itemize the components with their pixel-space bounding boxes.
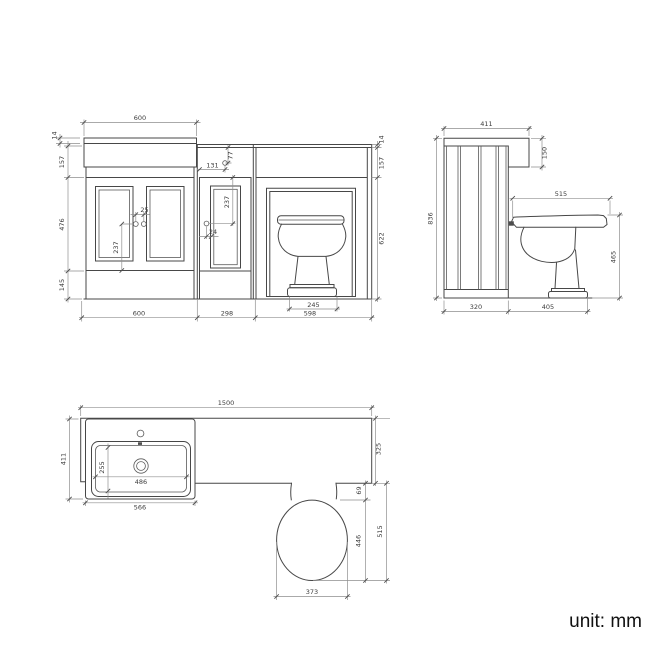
side-toilet-bowl — [521, 227, 579, 288]
front-elevation-view: 600 14 157 476 145 25 237 131 77 237 24 … — [51, 114, 386, 322]
front-toilet-base — [288, 288, 337, 297]
front-left-door-2 — [147, 187, 185, 262]
side-tick-marks — [434, 126, 621, 313]
front-knob-left-2 — [141, 222, 146, 227]
dim-front-section-mid: 298 — [221, 310, 233, 318]
dim-front-section-right: 598 — [304, 310, 316, 318]
dim-front-toilet-base-width: 245 — [307, 301, 319, 309]
dim-front-door-zone-height: 476 — [58, 218, 66, 230]
dim-front-mid-knob-edge-offset: 24 — [209, 228, 217, 236]
front-dimension-lines — [56, 120, 382, 322]
front-knob-left-1 — [133, 222, 138, 227]
plan-worktop-outline — [81, 418, 372, 483]
side-seat-hinge — [509, 221, 514, 225]
dim-front-top-width: 600 — [134, 114, 146, 122]
dim-side-panel-depth: 320 — [470, 303, 482, 311]
side-panel-grooves — [447, 146, 507, 290]
dim-side-toilet-zone-depth: 405 — [542, 303, 554, 311]
front-toilet-bowl — [278, 224, 346, 284]
dim-front-upstand-height: 157 — [58, 156, 66, 168]
technical-drawing-page: { "drawing": { "unit_label": "unit: mm",… — [0, 0, 650, 650]
dim-front-plinth-height: 145 — [58, 279, 66, 291]
dim-plan-counter-depth: 325 — [375, 443, 383, 455]
plan-toilet-neck — [291, 483, 337, 500]
side-toilet-base — [549, 292, 588, 299]
dim-front-section-left: 600 — [133, 310, 145, 318]
dim-side-counter-return-drop: 150 — [541, 147, 549, 159]
unit-note: unit: mm — [569, 611, 642, 632]
plan-tap-hole — [137, 430, 144, 437]
dim-front-knob-spacing: 25 — [140, 206, 148, 214]
dim-front-counter-thickness-left: 14 — [51, 131, 59, 139]
dim-front-mid-knob-offset-h: 131 — [206, 161, 218, 169]
dim-plan-pan-overall-length: 515 — [376, 525, 384, 537]
side-panel-outline — [444, 138, 592, 298]
dim-plan-seat-gap: 69 — [355, 486, 363, 494]
dim-plan-basin-unit-depth: 411 — [60, 453, 68, 465]
dim-front-counter-band-right: 157 — [378, 157, 386, 169]
dim-front-mid-door-knob-drop: 237 — [223, 196, 231, 208]
dim-side-seat-height: 465 — [610, 251, 618, 263]
plan-waste-inner — [137, 462, 146, 471]
dim-plan-overall-width: 1500 — [218, 399, 235, 407]
dim-plan-pan-length: 446 — [355, 535, 363, 547]
dim-side-overall-height: 836 — [427, 212, 435, 224]
front-left-door-2-panel — [150, 190, 181, 258]
front-knob-mid — [204, 221, 209, 226]
dim-plan-basin-unit-width: 566 — [134, 503, 146, 511]
dim-front-mid-knob-offset-v: 77 — [227, 151, 235, 159]
dim-front-knob-to-plinth: 237 — [112, 241, 120, 253]
dim-front-body-height-right: 622 — [378, 232, 386, 244]
dim-side-counter-depth: 411 — [480, 120, 492, 128]
dim-front-counter-thickness-right: 14 — [378, 135, 386, 143]
plan-waste-outer — [134, 459, 148, 473]
dim-side-seat-projection: 515 — [555, 190, 567, 198]
plan-dimension-lines — [66, 405, 391, 600]
side-toilet-seat — [512, 215, 608, 227]
dim-plan-basin-inner-depth: 255 — [98, 461, 106, 473]
side-elevation-view: 411 150 836 515 465 320 405 — [427, 120, 624, 315]
plan-toilet-pan — [277, 500, 348, 580]
plan-overflow-mark — [138, 442, 142, 445]
plan-view: 1500 411 255 486 566 325 69 446 515 373 — [60, 399, 391, 600]
plan-tick-marks — [67, 406, 388, 599]
drawing-canvas: 600 14 157 476 145 25 237 131 77 237 24 … — [0, 0, 650, 650]
dim-plan-basin-inner-width: 486 — [135, 478, 147, 486]
side-dimension-lines — [433, 126, 623, 315]
dim-plan-pan-width: 373 — [306, 588, 318, 596]
